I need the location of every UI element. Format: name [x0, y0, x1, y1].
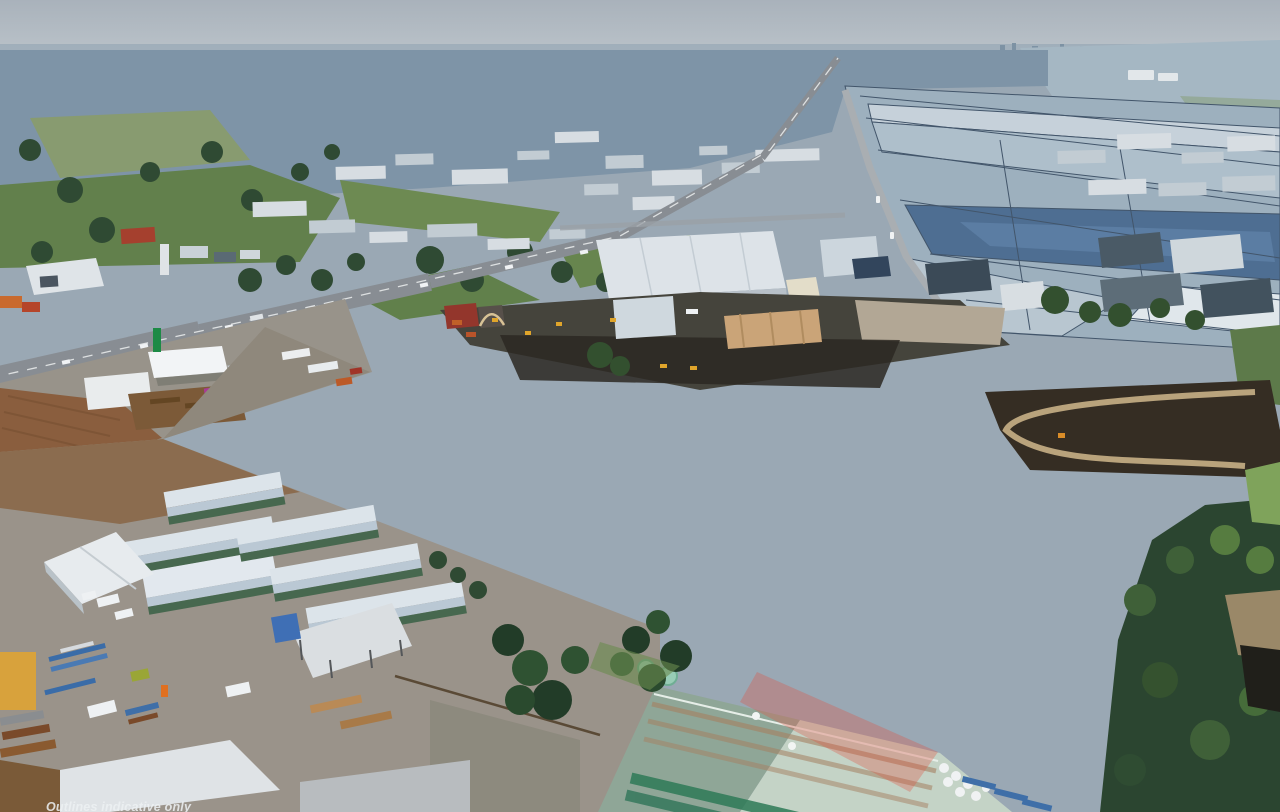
orange-truck	[0, 296, 22, 308]
navy-shed	[852, 256, 891, 279]
bushland-right	[1100, 462, 1280, 812]
petrol-price-sign	[153, 328, 161, 352]
red-roof-house	[121, 227, 156, 244]
blue-machine	[271, 613, 301, 643]
storage-yard	[0, 439, 660, 812]
aerial-photo-scene	[0, 0, 1280, 812]
excavator	[1058, 433, 1065, 438]
red-barn	[444, 303, 479, 329]
earthworks	[985, 380, 1280, 478]
orange-machine	[161, 685, 168, 697]
yellow-container	[0, 652, 36, 710]
disclaimer-text: Outlines indicative only	[46, 800, 191, 812]
aerial-site-photo: Outlines indicative only	[0, 0, 1280, 812]
silo	[160, 244, 169, 275]
